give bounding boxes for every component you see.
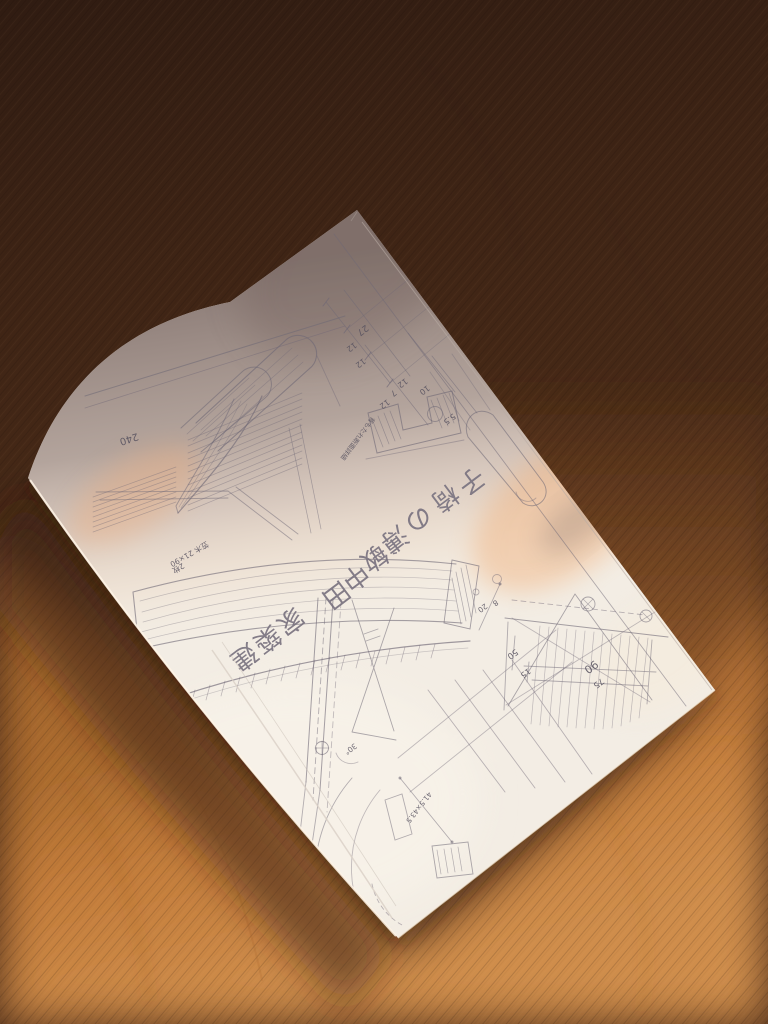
photo-canvas: 240 27 12 12 12 7 12 10 5.5 背もたれ断面詳細 笠木 … — [0, 0, 768, 1024]
photo-scene: 240 27 12 12 12 7 12 10 5.5 背もたれ断面詳細 笠木 … — [0, 0, 768, 1024]
